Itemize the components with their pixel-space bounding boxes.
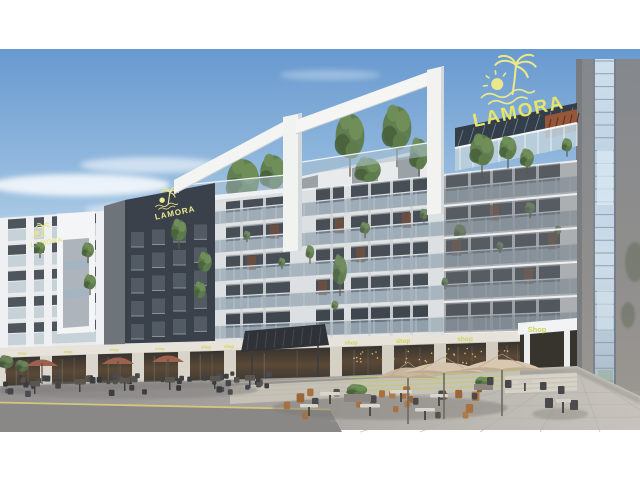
svg-text:shop: shop bbox=[63, 350, 73, 354]
svg-text:shop: shop bbox=[155, 346, 165, 351]
svg-text:shop: shop bbox=[396, 339, 411, 345]
svg-text:shop: shop bbox=[109, 347, 119, 352]
svg-text:Shop: Shop bbox=[528, 325, 547, 334]
svg-text:shop: shop bbox=[224, 344, 234, 349]
svg-text:shop: shop bbox=[457, 336, 473, 343]
svg-text:shop: shop bbox=[201, 345, 211, 350]
svg-text:shop: shop bbox=[17, 352, 27, 356]
svg-text:shop: shop bbox=[344, 340, 358, 346]
